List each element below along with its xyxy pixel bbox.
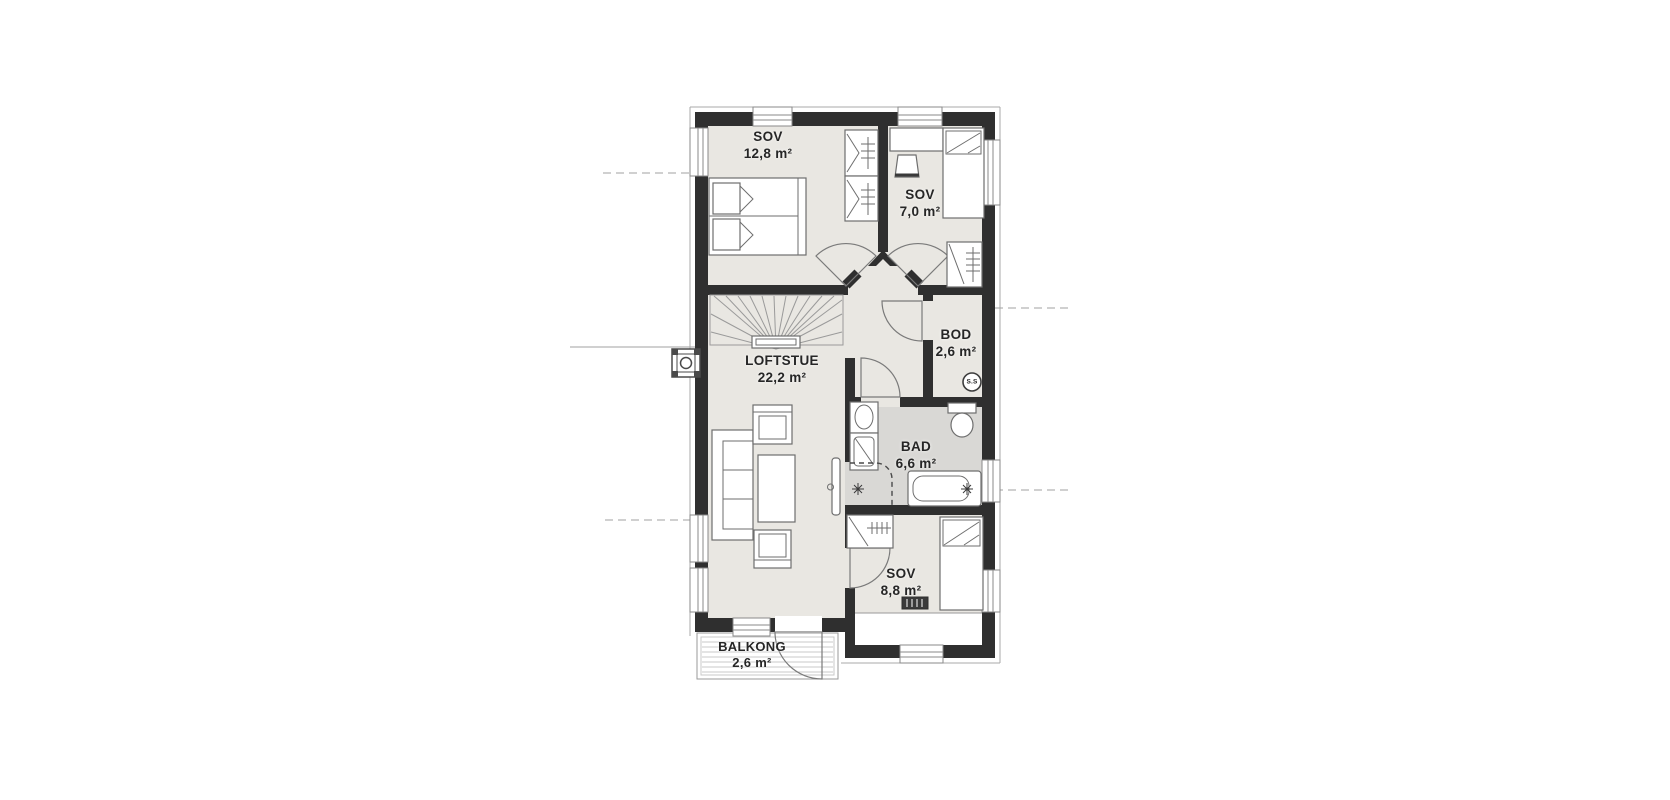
room-label-loftstue: LOFTSTUE 22,2 m² xyxy=(745,353,819,387)
window-left-sov1 xyxy=(690,128,708,176)
chimney-icon xyxy=(672,349,700,377)
window-top-sov1 xyxy=(753,107,792,126)
window-right-sov3 xyxy=(982,570,1000,612)
room-area: 7,0 m² xyxy=(900,204,941,221)
sink xyxy=(850,402,878,433)
room-area: 6,6 m² xyxy=(896,456,937,473)
wardrobe-sov2 xyxy=(947,242,982,287)
room-label-sov2: SOV 7,0 m² xyxy=(900,187,941,221)
room-area: 2,6 m² xyxy=(718,655,786,671)
armchair-upper xyxy=(753,405,792,444)
room-label-bad: BAD 6,6 m² xyxy=(896,439,937,473)
desk xyxy=(890,128,943,151)
room-area: 8,8 m² xyxy=(881,583,922,600)
room-area: 2,6 m² xyxy=(936,344,977,361)
window-bottom-sov3 xyxy=(900,645,943,663)
room-area: 22,2 m² xyxy=(745,370,819,387)
room-label-balkong: BALKONG 2,6 m² xyxy=(718,639,786,672)
room-label-bod: BOD 2,6 m² xyxy=(936,327,977,361)
single-bed-sov3 xyxy=(940,517,983,610)
bathtub xyxy=(908,471,981,506)
ss-badge-label: S.S xyxy=(966,379,977,386)
room-name: LOFTSTUE xyxy=(745,353,819,370)
room-name: BOD xyxy=(936,327,977,344)
double-bed xyxy=(709,178,806,255)
window-left-loftstue-1 xyxy=(690,515,708,562)
room-name: SOV xyxy=(881,566,922,583)
wardrobe-sov3 xyxy=(847,515,893,548)
room-name: SOV xyxy=(900,187,941,204)
window-right-sov2 xyxy=(982,140,1000,205)
washer-unit xyxy=(850,433,878,470)
armchair-lower xyxy=(754,530,791,568)
floorplan-canvas: SOV 12,8 m² SOV 7,0 m² BOD 2,6 m² LOFTST… xyxy=(0,0,1670,800)
room-name: SOV xyxy=(744,129,793,146)
wardrobe-sov1-lower xyxy=(845,176,878,221)
room-area: 12,8 m² xyxy=(744,146,793,163)
room-label-sov1: SOV 12,8 m² xyxy=(744,129,793,163)
room-label-sov3: SOV 8,8 m² xyxy=(881,566,922,600)
room-name: BALKONG xyxy=(718,639,786,655)
window-right-bad xyxy=(982,460,1000,502)
room-name: BAD xyxy=(896,439,937,456)
low-ceiling-strip xyxy=(855,613,982,645)
chair xyxy=(895,155,919,177)
floorplan-drawing xyxy=(0,0,1670,800)
window-left-loftstue-2 xyxy=(690,568,708,612)
sofa xyxy=(712,430,753,540)
wardrobe-sov1-upper xyxy=(845,130,878,176)
window-bottom-loftstue xyxy=(733,618,770,636)
window-top-sov2 xyxy=(898,107,942,126)
coffee-table xyxy=(758,455,795,522)
single-bed-sov2 xyxy=(943,128,984,218)
